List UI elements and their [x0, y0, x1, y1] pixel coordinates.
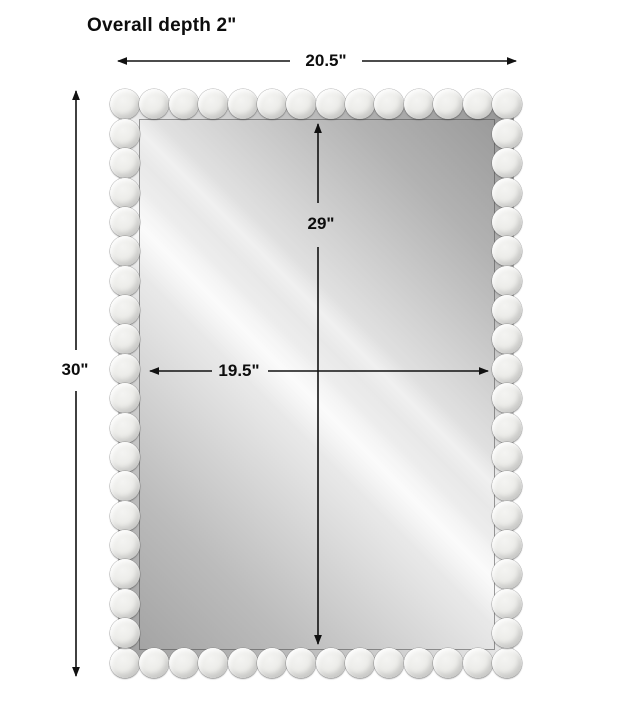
dimension-diagram: Overall depth 2" 20.5" 30"	[0, 0, 630, 727]
overall-width-label: 20.5"	[305, 51, 346, 71]
mirror-height-label: 29"	[308, 214, 335, 234]
mirror-width-label: 19.5"	[218, 361, 259, 381]
overall-height-label: 30"	[62, 360, 89, 380]
dimension-lines	[0, 0, 630, 727]
